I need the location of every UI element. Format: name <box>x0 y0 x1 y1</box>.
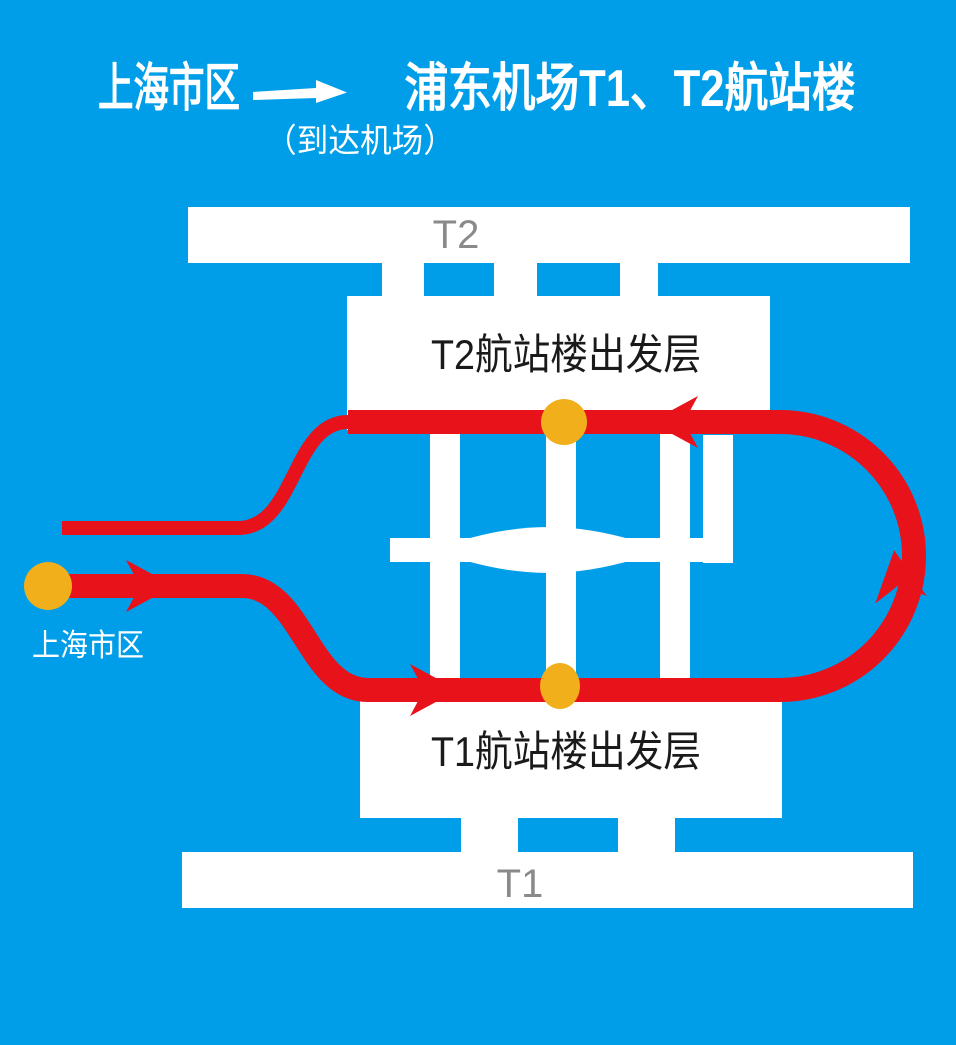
t1-departure-label: T1航站楼出发层 <box>431 728 701 775</box>
title-origin: 上海市区 <box>98 60 240 118</box>
title-subtitle: （到达机场） <box>265 122 455 159</box>
title-destination: 浦东机场T1、T2航站楼 <box>405 60 856 118</box>
t2-connector-2 <box>494 262 537 297</box>
t1-building-label: T1 <box>497 862 544 906</box>
city-start-marker <box>24 562 72 610</box>
route-map-page: 上海市区 浦东机场T1、T2航站楼 （到达机场） T2 T1 T2航站楼出发层 … <box>0 0 956 1045</box>
t2-building-label: T2 <box>433 213 480 257</box>
t2-connector-1 <box>382 262 424 297</box>
t2-building-bar <box>188 207 910 263</box>
t1-connector-1 <box>461 817 518 853</box>
city-label: 上海市区 <box>32 628 144 663</box>
t2-connector-3 <box>620 262 658 297</box>
t1-connector-2 <box>618 817 675 853</box>
t2-departure-label: T2航站楼出发层 <box>431 331 701 378</box>
t2-stop-marker <box>541 399 587 445</box>
t1-stop-marker <box>540 663 580 709</box>
airport-route-map: 上海市区 浦东机场T1、T2航站楼 （到达机场） T2 T1 T2航站楼出发层 … <box>0 0 956 1045</box>
t1-building-bar <box>182 852 913 908</box>
